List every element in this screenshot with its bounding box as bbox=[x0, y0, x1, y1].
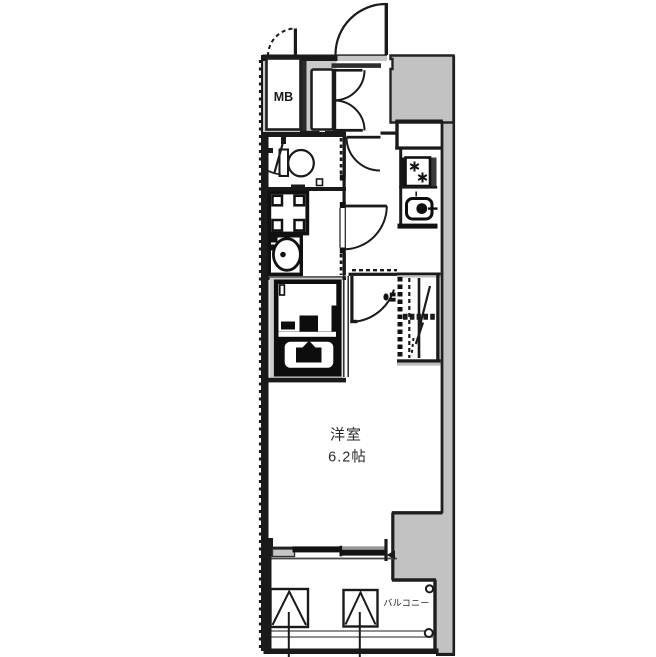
svg-text:MB: MB bbox=[274, 90, 293, 104]
svg-text:バルコニー: バルコニー bbox=[383, 598, 429, 608]
svg-text:6.2帖: 6.2帖 bbox=[328, 449, 367, 466]
svg-text:洋室: 洋室 bbox=[330, 427, 362, 444]
